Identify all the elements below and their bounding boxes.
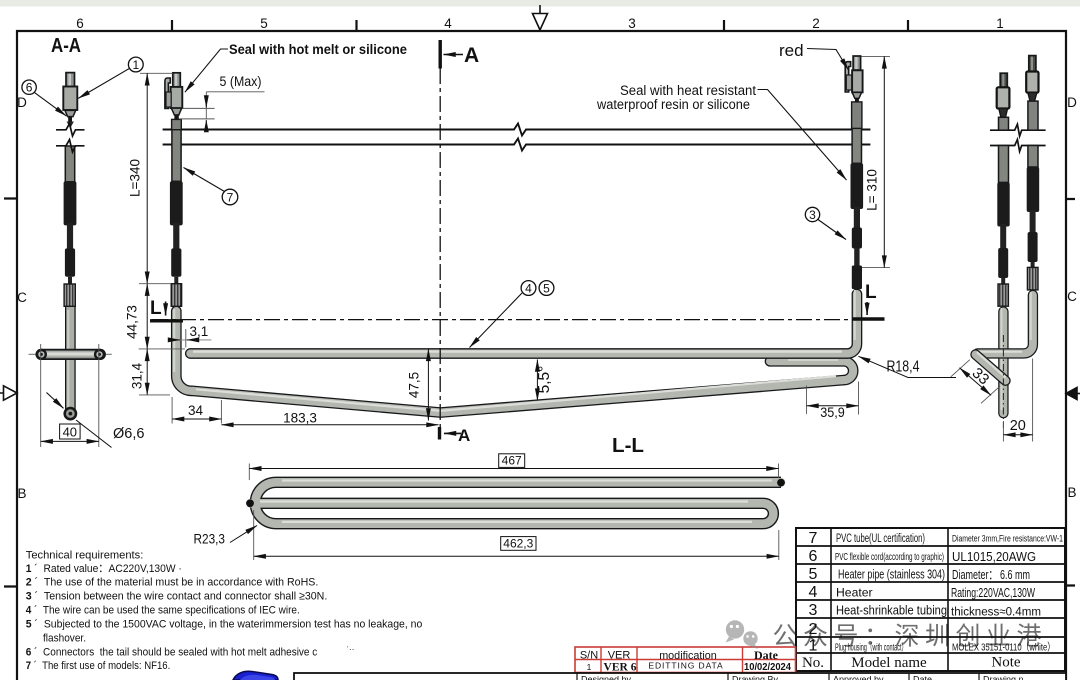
svg-text:A: A <box>458 426 470 445</box>
svg-text:5,5°: 5,5° <box>536 366 553 394</box>
svg-text:5: 5 <box>809 566 818 583</box>
svg-text:47,5: 47,5 <box>407 372 422 398</box>
svg-text:6: 6 <box>809 548 818 565</box>
svg-text:waterproof resin or silicone: waterproof resin or silicone <box>596 97 750 112</box>
svg-text:6: 6 <box>76 16 84 31</box>
svg-text:C: C <box>17 290 27 305</box>
svg-text:7: 7 <box>809 530 818 547</box>
svg-text:flashover.: flashover. <box>43 633 86 645</box>
svg-text:B: B <box>1067 485 1076 500</box>
svg-text:Note: Note <box>991 655 1021 671</box>
svg-text:3: 3 <box>809 602 818 619</box>
svg-text:ˈ··: ˈ·· <box>346 644 355 654</box>
svg-text:10/02/2024: 10/02/2024 <box>744 662 791 673</box>
svg-text:Drawing By: Drawing By <box>732 675 779 681</box>
svg-text:35,9: 35,9 <box>820 404 845 420</box>
svg-text:1 ´ Rated value：AC220V,130W ·: 1 ´ Rated value：AC220V,130W · <box>26 563 182 575</box>
svg-text:Heater pipe (stainless 304): Heater pipe (stainless 304) <box>838 568 945 582</box>
svg-text:Designed by: Designed by <box>581 675 632 681</box>
svg-text:S/N: S/N <box>580 649 598 661</box>
svg-text:R23,3: R23,3 <box>194 531 226 547</box>
svg-text:5 (Max): 5 (Max) <box>220 74 262 89</box>
svg-text:5 ´ Subjected to the 1500VAC: 5 ´ Subjected to the 1500VAC voltage, in… <box>26 619 423 631</box>
svg-text:5: 5 <box>260 16 268 31</box>
svg-text:Diameter： 6.6 mm: Diameter： 6.6 mm <box>952 568 1030 582</box>
svg-text:31,4: 31,4 <box>130 362 145 389</box>
svg-text:Seal with hot melt or silicone: Seal with hot melt or silicone <box>229 42 407 57</box>
svg-text:44,73: 44,73 <box>125 305 140 339</box>
svg-text:6 ´ Connectors the tail sho: 6 ´ Connectors the tail should be sealed… <box>26 647 318 659</box>
svg-text:VER: VER <box>608 649 631 661</box>
svg-text:UL1015,20AWG: UL1015,20AWG <box>952 550 1036 564</box>
svg-text:Drawing n: Drawing n <box>983 675 1024 681</box>
svg-text:Approved by: Approved by <box>833 675 884 681</box>
svg-text:4: 4 <box>525 282 532 296</box>
svg-text:R18,4: R18,4 <box>887 359 920 376</box>
svg-text:B: B <box>17 486 26 501</box>
svg-text:Model name: Model name <box>851 655 927 671</box>
svg-text:6: 6 <box>26 81 33 95</box>
svg-text:EDITTING DATA: EDITTING DATA <box>648 661 723 671</box>
svg-text:PVC flexible cord(according: PVC flexible cord(according to graphic) <box>835 551 944 563</box>
svg-text:L= 310: L= 310 <box>865 169 880 211</box>
svg-text:Seal with heat resistant: Seal with heat resistant <box>620 83 756 98</box>
svg-text:L: L <box>865 282 877 303</box>
svg-text:Technical requirements:: Technical requirements: <box>26 550 144 562</box>
svg-text:red: red <box>779 41 804 60</box>
svg-text:3,1: 3,1 <box>190 324 209 339</box>
svg-text:Rating:220VAC,130W: Rating:220VAC,130W <box>951 586 1035 600</box>
svg-text:1: 1 <box>587 662 592 672</box>
svg-text:3: 3 <box>809 208 816 222</box>
svg-text:D: D <box>1067 95 1077 110</box>
svg-text:2: 2 <box>812 16 820 31</box>
svg-text:462,3: 462,3 <box>503 537 533 551</box>
svg-text:PVC tube(UL certification): PVC tube(UL certification) <box>836 533 925 545</box>
svg-text:A-A: A-A <box>51 34 81 57</box>
svg-text:Ø6,6: Ø6,6 <box>113 426 144 442</box>
svg-text:L: L <box>150 298 162 319</box>
svg-text:L-L: L-L <box>612 434 644 457</box>
svg-text:1: 1 <box>132 58 139 72</box>
svg-text:thickness≈0.4mm: thickness≈0.4mm <box>951 605 1041 619</box>
svg-text:4 ´ The wire can be used the: 4 ´ The wire can be used the same specif… <box>26 605 300 617</box>
svg-text:7: 7 <box>227 191 234 205</box>
svg-text:34: 34 <box>188 403 204 418</box>
svg-text:No.: No. <box>802 655 824 671</box>
svg-text:7 ´ The first use of models:: 7 ´ The first use of models: NF16. <box>26 660 171 672</box>
svg-text:VER 6: VER 6 <box>604 661 637 673</box>
svg-text:3 ´ Tension between the wire: 3 ´ Tension between the wire contact and… <box>26 591 328 603</box>
svg-text:2 ´ The use of the material m: 2 ´ The use of the material must be in a… <box>26 577 319 589</box>
svg-text:40: 40 <box>63 424 77 439</box>
svg-text:Heat-shrinkable tubing: Heat-shrinkable tubing <box>836 604 947 618</box>
svg-text:C: C <box>1067 289 1077 304</box>
svg-text:1: 1 <box>996 16 1004 31</box>
svg-text:L=340: L=340 <box>128 159 143 197</box>
svg-text:4: 4 <box>809 584 818 601</box>
svg-text:20: 20 <box>1010 418 1026 434</box>
svg-text:Diameter 3mm,Fire resistance:V: Diameter 3mm,Fire resistance:VW-1 <box>952 534 1063 545</box>
svg-text:4: 4 <box>444 16 452 31</box>
svg-text:5: 5 <box>543 282 550 296</box>
svg-text:183,3: 183,3 <box>283 411 317 426</box>
svg-text:D: D <box>17 95 27 110</box>
svg-text:467: 467 <box>502 454 522 468</box>
svg-text:A: A <box>464 44 479 67</box>
svg-text:Date: Date <box>913 675 932 681</box>
svg-text:公众号：深圳创业港: 公众号：深圳创业港 <box>773 623 1048 651</box>
svg-text:Heater: Heater <box>836 586 873 600</box>
svg-text:3: 3 <box>628 16 636 31</box>
